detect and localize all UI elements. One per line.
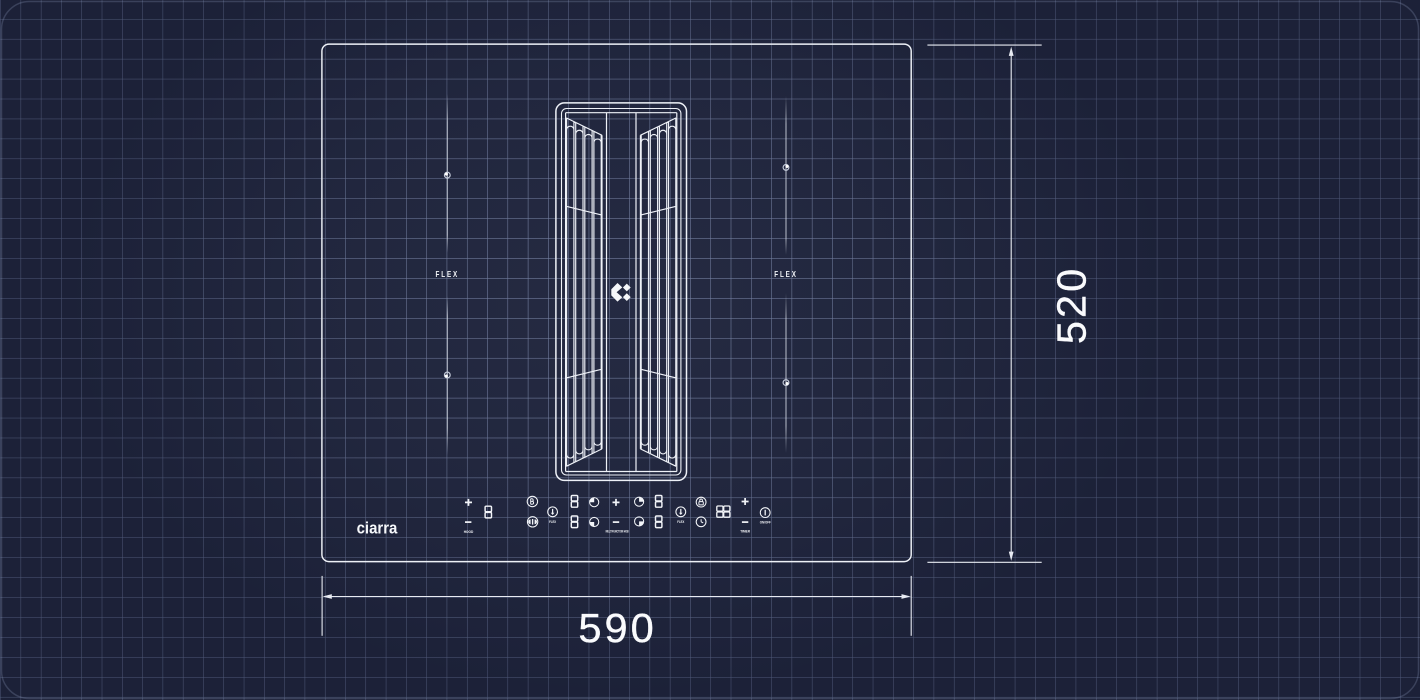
svg-text:FLEX: FLEX xyxy=(677,520,685,524)
svg-text:ON/OFF: ON/OFF xyxy=(760,520,771,524)
svg-text:520: 520 xyxy=(1049,266,1095,345)
svg-text:590: 590 xyxy=(578,605,657,651)
svg-text:FLEX: FLEX xyxy=(549,520,557,524)
svg-text:HOOD: HOOD xyxy=(464,530,474,534)
svg-text:FLEX: FLEX xyxy=(774,270,798,279)
svg-text:TIMER: TIMER xyxy=(740,529,750,533)
svg-text:ciarra: ciarra xyxy=(357,519,399,537)
svg-text:FLEX: FLEX xyxy=(436,270,460,279)
svg-text:MULTIFUNCTION HOB: MULTIFUNCTION HOB xyxy=(606,530,629,534)
